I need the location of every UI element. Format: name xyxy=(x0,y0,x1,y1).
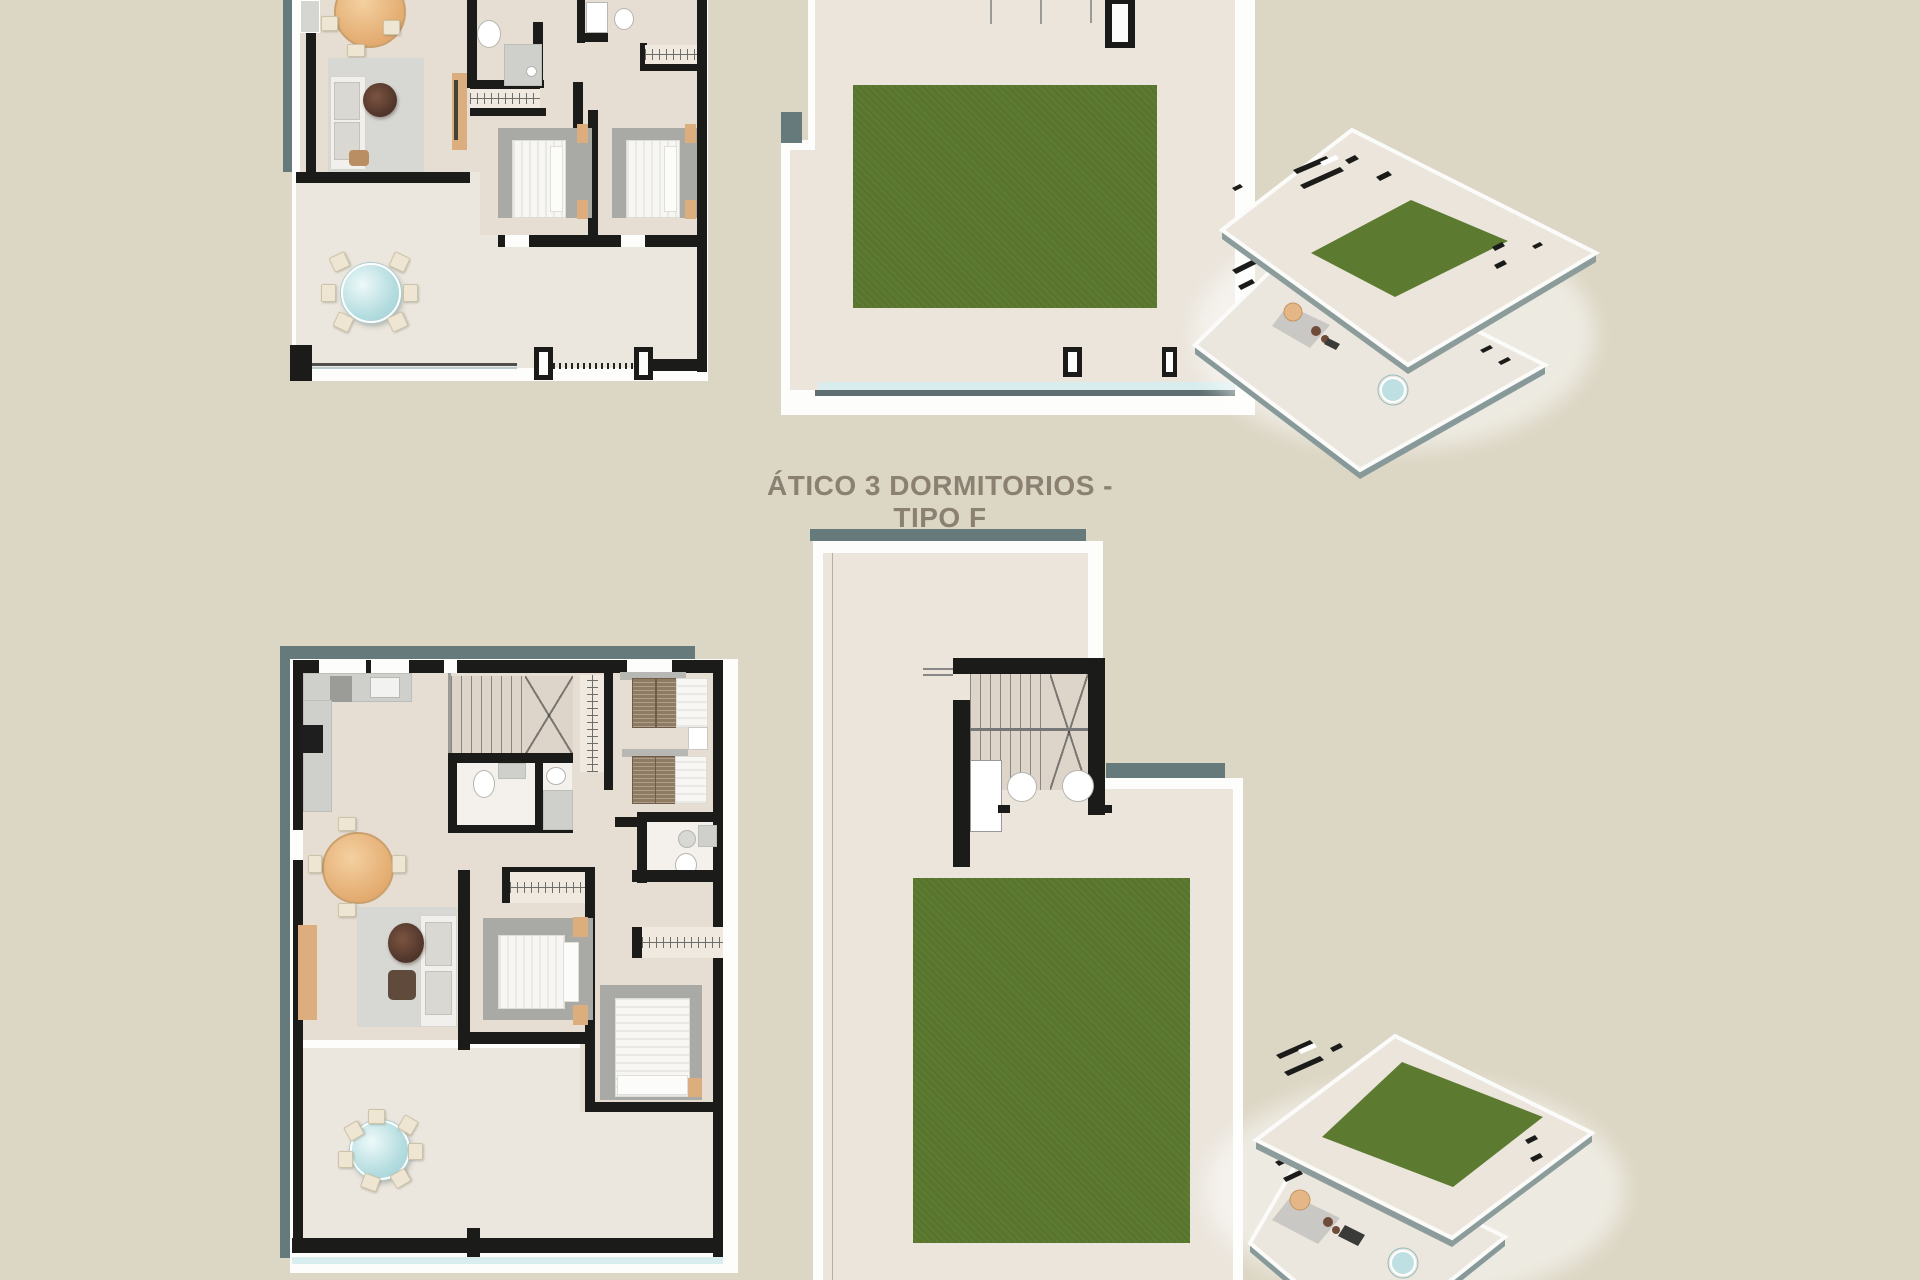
wall-segment xyxy=(448,753,573,763)
window-mark xyxy=(1232,184,1243,191)
chair xyxy=(403,284,418,302)
shower xyxy=(543,790,573,830)
bathroom-sink xyxy=(614,8,634,30)
nightstand xyxy=(685,200,696,219)
chair xyxy=(368,1109,385,1124)
glass-edge xyxy=(292,1257,723,1264)
sofa-cushion xyxy=(425,971,452,1015)
tv xyxy=(454,80,458,140)
wardrobe-rail xyxy=(470,89,540,108)
chair xyxy=(321,16,338,31)
nightstand xyxy=(573,1005,588,1025)
wall-segment xyxy=(580,33,608,42)
plant xyxy=(388,923,424,963)
window-gap xyxy=(444,660,457,673)
leader-line xyxy=(923,668,953,670)
window-gap xyxy=(300,0,320,33)
toilet xyxy=(473,770,495,798)
bed-pillow xyxy=(550,146,563,212)
iso-view-top xyxy=(1180,100,1650,490)
chair xyxy=(392,855,406,873)
chair xyxy=(347,44,365,57)
railing-post xyxy=(1090,0,1092,23)
nightstand xyxy=(688,1078,702,1097)
balustrade xyxy=(312,363,517,366)
bed-mattress xyxy=(675,756,707,804)
bed-duvet xyxy=(656,678,678,728)
terrace-table xyxy=(1381,378,1405,402)
floor-plan-top-left xyxy=(283,0,708,383)
bed-duvet xyxy=(632,678,656,728)
terrace-floor xyxy=(590,1112,723,1238)
stool xyxy=(349,150,369,166)
stairs-winder xyxy=(525,676,573,755)
wall-segment xyxy=(290,345,312,381)
plate-edge xyxy=(815,390,1235,396)
stairs-landing-line xyxy=(970,728,1088,731)
nightstand xyxy=(577,124,588,143)
dining-table xyxy=(322,832,394,904)
door-mark xyxy=(621,235,645,247)
sofa-cushion xyxy=(425,922,452,966)
nightstand xyxy=(573,917,588,937)
coffee-table xyxy=(388,970,416,1000)
stair-outline-mark xyxy=(1284,1056,1324,1076)
plate-edge xyxy=(280,646,290,1258)
iso-view-bottom xyxy=(1180,1000,1650,1280)
door-mark xyxy=(505,235,529,247)
nightstand xyxy=(688,727,708,750)
terrace-table xyxy=(341,263,401,323)
wall-segment xyxy=(604,673,613,790)
toilet xyxy=(477,20,501,48)
shower-head xyxy=(678,830,696,848)
chair xyxy=(338,903,356,917)
wall-segment xyxy=(458,870,470,1050)
wall-segment xyxy=(632,927,642,958)
bed-pillow xyxy=(664,146,677,212)
lawn xyxy=(913,878,1190,1243)
chimney-mark xyxy=(1112,4,1128,42)
plant xyxy=(363,83,397,117)
fridge xyxy=(330,676,352,702)
wall-segment xyxy=(953,658,1105,674)
threshold-ticks xyxy=(553,362,634,370)
sideboard xyxy=(298,925,317,1020)
plant xyxy=(1332,1226,1340,1234)
wall-segment xyxy=(632,870,723,882)
shower xyxy=(586,2,608,33)
shower-drain xyxy=(526,66,537,77)
wall-segment xyxy=(470,108,546,116)
balustrade xyxy=(312,367,517,369)
wardrobe-rail xyxy=(510,872,587,903)
chair xyxy=(321,284,336,302)
chimney-mark xyxy=(1330,1043,1343,1052)
door-mark xyxy=(639,352,648,375)
wardrobe-rail xyxy=(645,45,697,64)
wall-segment xyxy=(953,700,970,867)
bed-mattress xyxy=(498,935,565,1009)
stairs xyxy=(451,676,525,755)
wall-segment xyxy=(502,872,510,903)
window-mark xyxy=(1068,352,1077,372)
wall-segment xyxy=(697,0,707,372)
plant xyxy=(1323,1217,1333,1227)
sofa-cushion xyxy=(334,82,360,120)
wall-segment xyxy=(306,33,316,173)
plate-edge xyxy=(1106,763,1225,778)
wardrobe-rail xyxy=(642,927,723,958)
chair xyxy=(308,855,322,873)
chair xyxy=(383,20,400,35)
wardrobe-rail xyxy=(580,675,604,772)
terrace-table xyxy=(1391,1251,1415,1275)
kitchen-counter xyxy=(303,700,332,812)
bed-pillow xyxy=(617,1075,688,1095)
brochure-page: ÁTICO 3 DORMITORIOS - TIPO F xyxy=(0,0,1920,1280)
wall-segment xyxy=(292,1238,723,1253)
cooktop xyxy=(300,725,323,753)
wall-segment xyxy=(653,359,697,371)
wall-segment xyxy=(470,1032,587,1044)
wall-segment xyxy=(615,817,637,827)
dining-table xyxy=(1284,303,1302,321)
wall-segment xyxy=(448,763,457,833)
chair xyxy=(338,1151,353,1168)
solarium-floor xyxy=(790,150,818,390)
bed-duvet xyxy=(655,756,677,804)
toilet xyxy=(1007,772,1037,802)
dining-table xyxy=(1290,1190,1310,1210)
wall-segment xyxy=(467,1228,480,1257)
nightstand xyxy=(685,124,696,143)
glass-edge xyxy=(818,382,1235,390)
window-gap xyxy=(293,830,303,860)
plate-edge xyxy=(280,646,695,659)
railing-post xyxy=(1040,0,1042,24)
nightstand xyxy=(577,200,588,219)
wall-segment xyxy=(998,805,1010,813)
floor-line xyxy=(832,553,833,1280)
lawn xyxy=(853,85,1157,308)
closet xyxy=(970,760,1002,832)
shower xyxy=(504,44,542,86)
window-mark xyxy=(1166,352,1173,372)
bathroom-sink xyxy=(698,825,717,847)
bathroom-sink xyxy=(498,763,526,779)
chair xyxy=(338,817,356,831)
plate-edge xyxy=(781,112,802,143)
floor-plan-bottom-left xyxy=(280,645,740,1273)
leader-line xyxy=(923,674,953,676)
window-gap xyxy=(371,660,409,673)
chair xyxy=(408,1143,423,1160)
wall-segment xyxy=(643,64,697,71)
shower-tray xyxy=(1062,770,1094,802)
bed-duvet xyxy=(632,756,656,804)
bed-mattress xyxy=(676,678,708,728)
wall-segment xyxy=(590,1102,723,1112)
plate-edge xyxy=(810,529,1086,541)
railing-post xyxy=(990,0,992,24)
bathroom-sink xyxy=(546,767,566,785)
wall-segment xyxy=(637,812,713,822)
bed-pillow xyxy=(563,942,579,1002)
wall-segment xyxy=(1095,805,1112,813)
wall-segment xyxy=(713,660,723,1258)
wall-segment xyxy=(535,763,543,825)
window-gap xyxy=(319,660,366,673)
door-mark xyxy=(539,352,548,375)
wall-segment xyxy=(296,172,470,183)
kitchen-sink xyxy=(370,677,400,698)
plant xyxy=(1311,326,1321,336)
wall-segment xyxy=(467,0,477,88)
